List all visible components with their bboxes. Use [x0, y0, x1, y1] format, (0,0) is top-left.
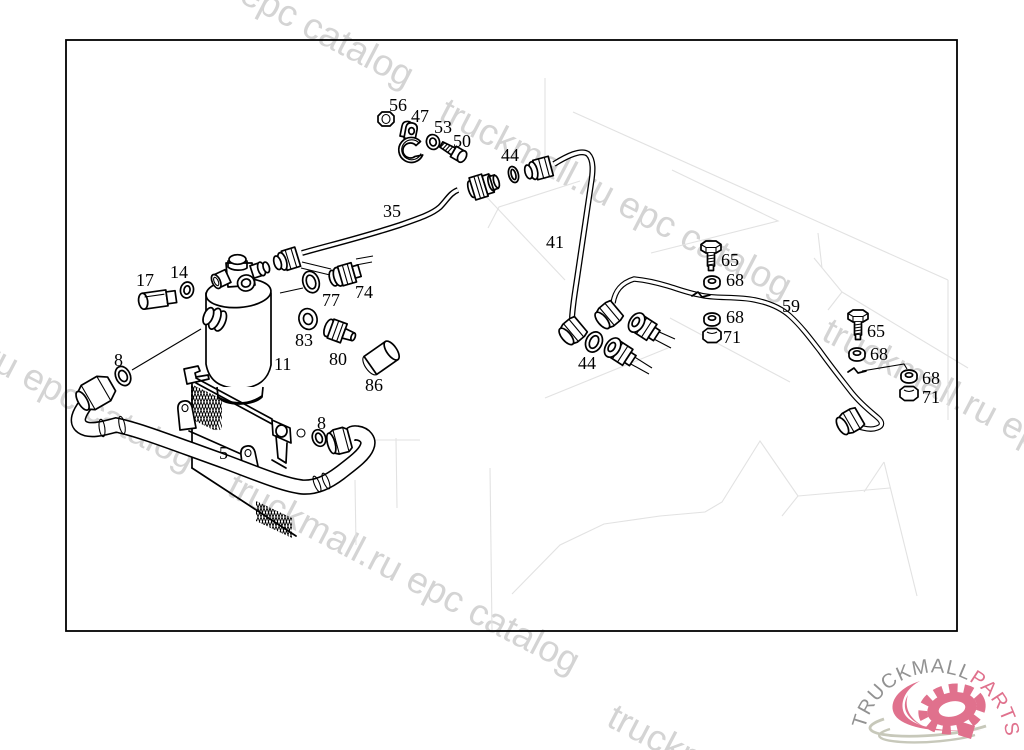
svg-text:71: 71	[723, 327, 741, 347]
svg-text:56: 56	[389, 95, 407, 115]
svg-text:68: 68	[726, 270, 744, 290]
svg-text:74: 74	[355, 282, 373, 302]
svg-text:71: 71	[922, 387, 940, 407]
svg-text:65: 65	[867, 321, 885, 341]
svg-text:8: 8	[114, 350, 123, 370]
svg-text:83: 83	[295, 330, 313, 350]
svg-text:68: 68	[922, 368, 940, 388]
svg-text:5: 5	[219, 443, 228, 463]
svg-text:47: 47	[411, 106, 429, 126]
svg-text:80: 80	[329, 349, 347, 369]
svg-text:44: 44	[501, 145, 519, 165]
svg-text:41: 41	[546, 232, 564, 252]
svg-text:8: 8	[317, 413, 326, 433]
svg-text:17: 17	[136, 270, 154, 290]
svg-text:77: 77	[322, 290, 340, 310]
svg-text:14: 14	[170, 262, 188, 282]
svg-text:53: 53	[434, 117, 452, 137]
svg-text:68: 68	[726, 307, 744, 327]
svg-text:35: 35	[383, 201, 401, 221]
svg-text:11: 11	[274, 354, 291, 374]
svg-text:44: 44	[578, 353, 596, 373]
svg-text:50: 50	[453, 131, 471, 151]
svg-text:86: 86	[365, 375, 383, 395]
svg-text:65: 65	[721, 250, 739, 270]
svg-text:59: 59	[782, 296, 800, 316]
svg-text:68: 68	[870, 344, 888, 364]
